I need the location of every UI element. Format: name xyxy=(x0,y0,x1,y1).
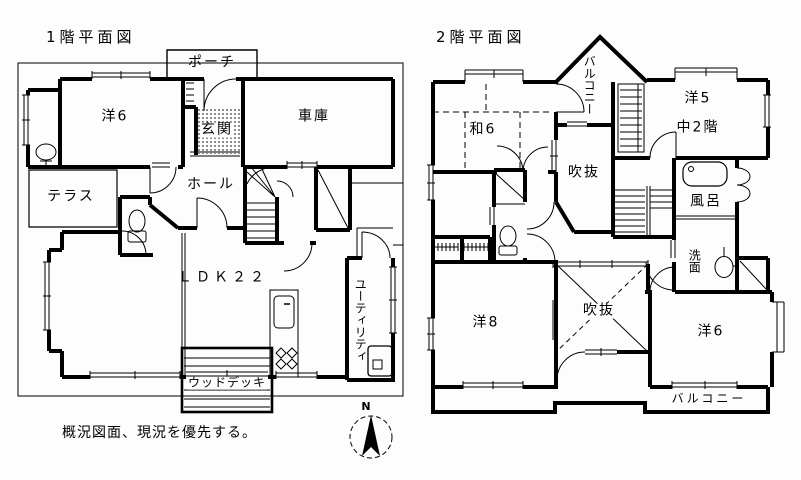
washing-machine-icon xyxy=(368,346,392,376)
room-label-western6-f1: 洋6 xyxy=(102,110,129,125)
f1-stairs-icon xyxy=(247,167,275,238)
bathtub-icon xyxy=(683,162,727,186)
f2-windows xyxy=(427,68,784,389)
room-label-balcony-top: バルコニー xyxy=(583,55,596,115)
room-label-mezzanine: 中2階 xyxy=(677,121,720,136)
room-label-western8: 洋8 xyxy=(473,316,500,331)
f2-stairs-icon xyxy=(615,186,672,236)
room-label-garage: 車庫 xyxy=(298,110,330,125)
room-label-void-upper: 吹抜 xyxy=(568,166,600,181)
f1-washbasin-icon xyxy=(36,144,56,165)
note-text: 概況図面、現況を優先する。 xyxy=(62,426,257,441)
stove-icon xyxy=(276,348,297,369)
room-label-western6-f2: 洋6 xyxy=(698,325,725,340)
room-label-hall: ホール xyxy=(187,178,235,193)
compass-north-label: N xyxy=(361,401,370,413)
kitchen-sink-icon xyxy=(274,296,294,328)
room-label-porch: ポーチ xyxy=(188,56,236,71)
room-label-utility: ユーティリティ xyxy=(354,278,367,362)
room-label-balcony-bottom: バルコニー xyxy=(672,393,747,406)
f2-walls xyxy=(433,37,772,412)
room-label-wood-deck: ウッドデッキ xyxy=(187,377,267,390)
room-label-western5: 洋5 xyxy=(685,92,712,107)
room-label-bath: 風呂 xyxy=(690,195,722,210)
room-label-ldk: ＬＤＫ２２ xyxy=(178,271,268,286)
floorplan-drawing xyxy=(0,0,801,480)
room-label-terrace: テラス xyxy=(47,190,95,205)
room-label-entrance: 玄関 xyxy=(200,123,234,138)
f1-toilet-icon xyxy=(128,210,146,242)
floor1-title: 1階平面図 xyxy=(46,30,136,46)
room-label-void-lower: 吹抜 xyxy=(582,304,616,319)
compass-icon xyxy=(350,415,392,458)
room-label-washroom: 洗面 xyxy=(688,249,701,273)
floor2-title: 2階平面図 xyxy=(436,30,526,46)
mezzanine-ladder-icon xyxy=(618,84,644,152)
room-label-japanese6: 和6 xyxy=(470,123,497,138)
kitchen-counter xyxy=(270,290,298,377)
floor1-plan xyxy=(18,50,403,412)
f2-sink-icon xyxy=(715,247,738,278)
floor2-plan xyxy=(427,37,784,412)
f2-toilet-icon xyxy=(499,226,517,255)
floorplan-document: 1階平面図 2階平面図 ポーチ 洋6 玄関 車庫 テラス ホール ＬＤＫ２２ ウ… xyxy=(0,0,801,480)
